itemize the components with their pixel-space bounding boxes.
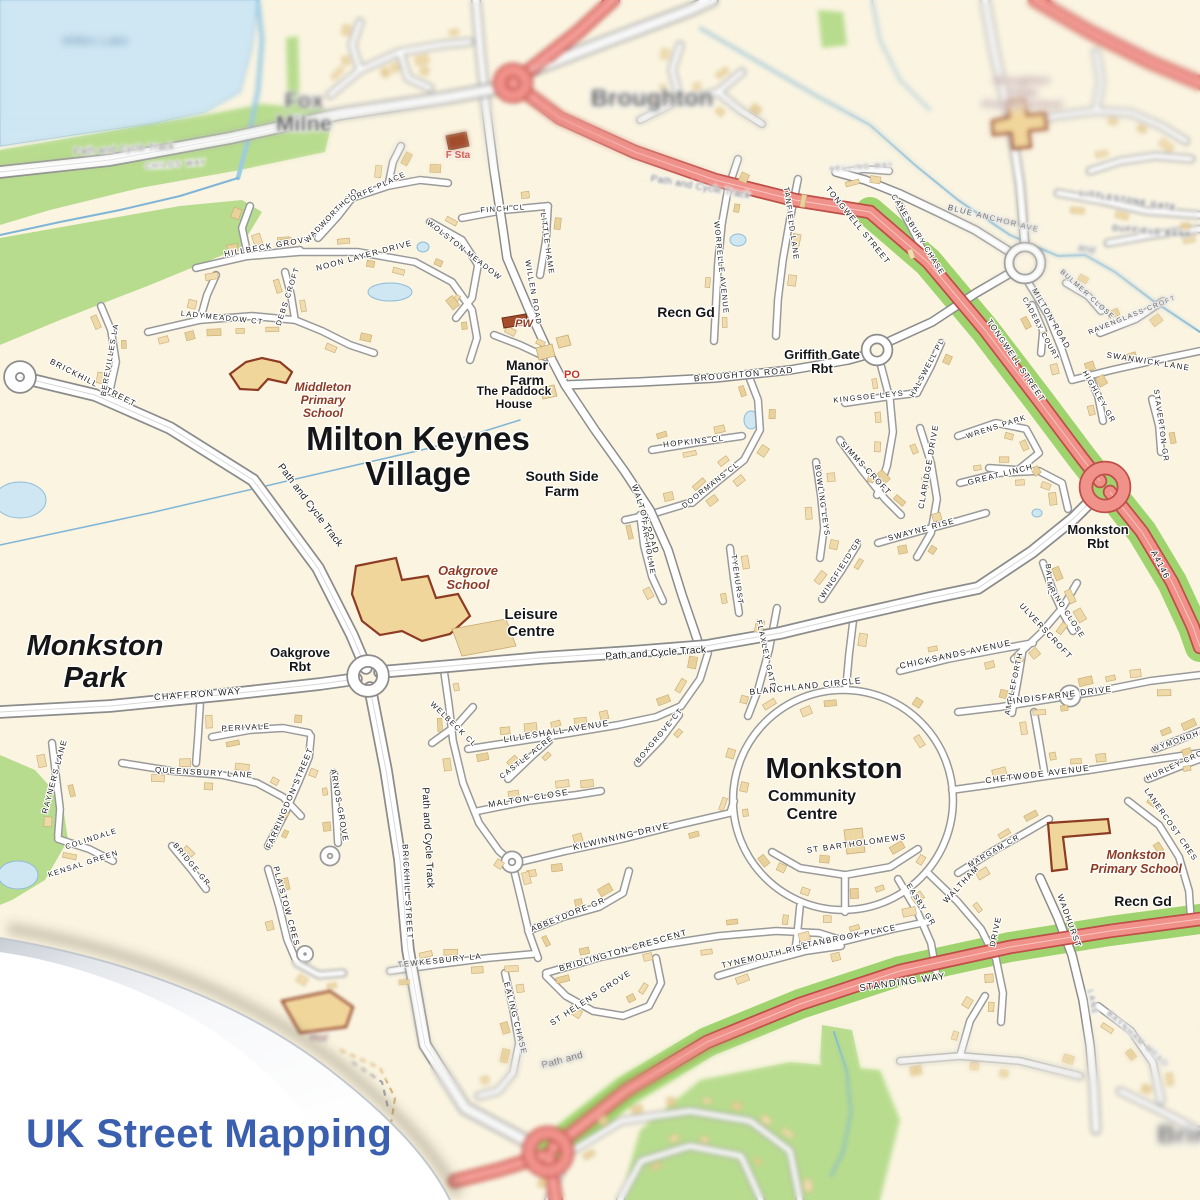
svg-text:PW: PW	[515, 318, 534, 330]
label-f-sta: F Sta	[446, 150, 471, 161]
green-area-2	[818, 10, 847, 48]
label-recn-gd: Recn Gd	[657, 304, 715, 320]
svg-text:OakgroveSchool: OakgroveSchool	[438, 563, 498, 592]
pond-5	[730, 234, 746, 246]
label-oakgrove-school: OakgroveSchool	[438, 563, 498, 592]
map-photo: Willen LakeFoxMilneBroughtonMilton Keyne…	[0, 0, 1200, 1200]
svg-text:PO: PO	[564, 369, 580, 381]
label-pw: PW	[515, 318, 534, 330]
pond-1	[0, 482, 46, 518]
label-willen-lake: Willen Lake	[61, 33, 128, 48]
brand-logo-text: UK Street Mapping	[26, 1112, 392, 1157]
svg-text:Recn Gd: Recn Gd	[1114, 893, 1172, 909]
svg-text:F Sta: F Sta	[446, 150, 471, 161]
svg-text:ool: ool	[309, 1029, 329, 1045]
svg-text:Recn Gd: Recn Gd	[657, 304, 715, 320]
label-middleton-primary-school: MiddletonPrimarySchool	[295, 380, 352, 420]
svg-text:MiddletonPrimarySchool: MiddletonPrimarySchool	[295, 380, 352, 420]
label-po: PO	[564, 369, 580, 381]
pond-3	[0, 861, 38, 889]
label-monkston: Monkston	[766, 753, 903, 785]
label-ool: ool	[309, 1029, 329, 1045]
svg-text:LeisureCentre: LeisureCentre	[504, 606, 557, 640]
label-brinklow: Brinklow	[1157, 1119, 1200, 1149]
street-map-canvas: Willen LakeFoxMilneBroughtonMilton Keyne…	[0, 0, 1200, 1200]
pond-0	[368, 283, 412, 301]
pond-6	[1032, 509, 1042, 517]
svg-text:Brinklow: Brinklow	[1157, 1119, 1200, 1149]
label-broughton: Broughton	[591, 85, 714, 112]
label-leisure-centre: LeisureCentre	[504, 606, 557, 640]
svg-text:Willen Lake: Willen Lake	[61, 33, 128, 48]
svg-text:Broughton: Broughton	[591, 85, 714, 112]
pond-4	[417, 242, 429, 252]
svg-text:Monkston: Monkston	[766, 753, 903, 785]
label-recn-gd: Recn Gd	[1114, 893, 1172, 909]
